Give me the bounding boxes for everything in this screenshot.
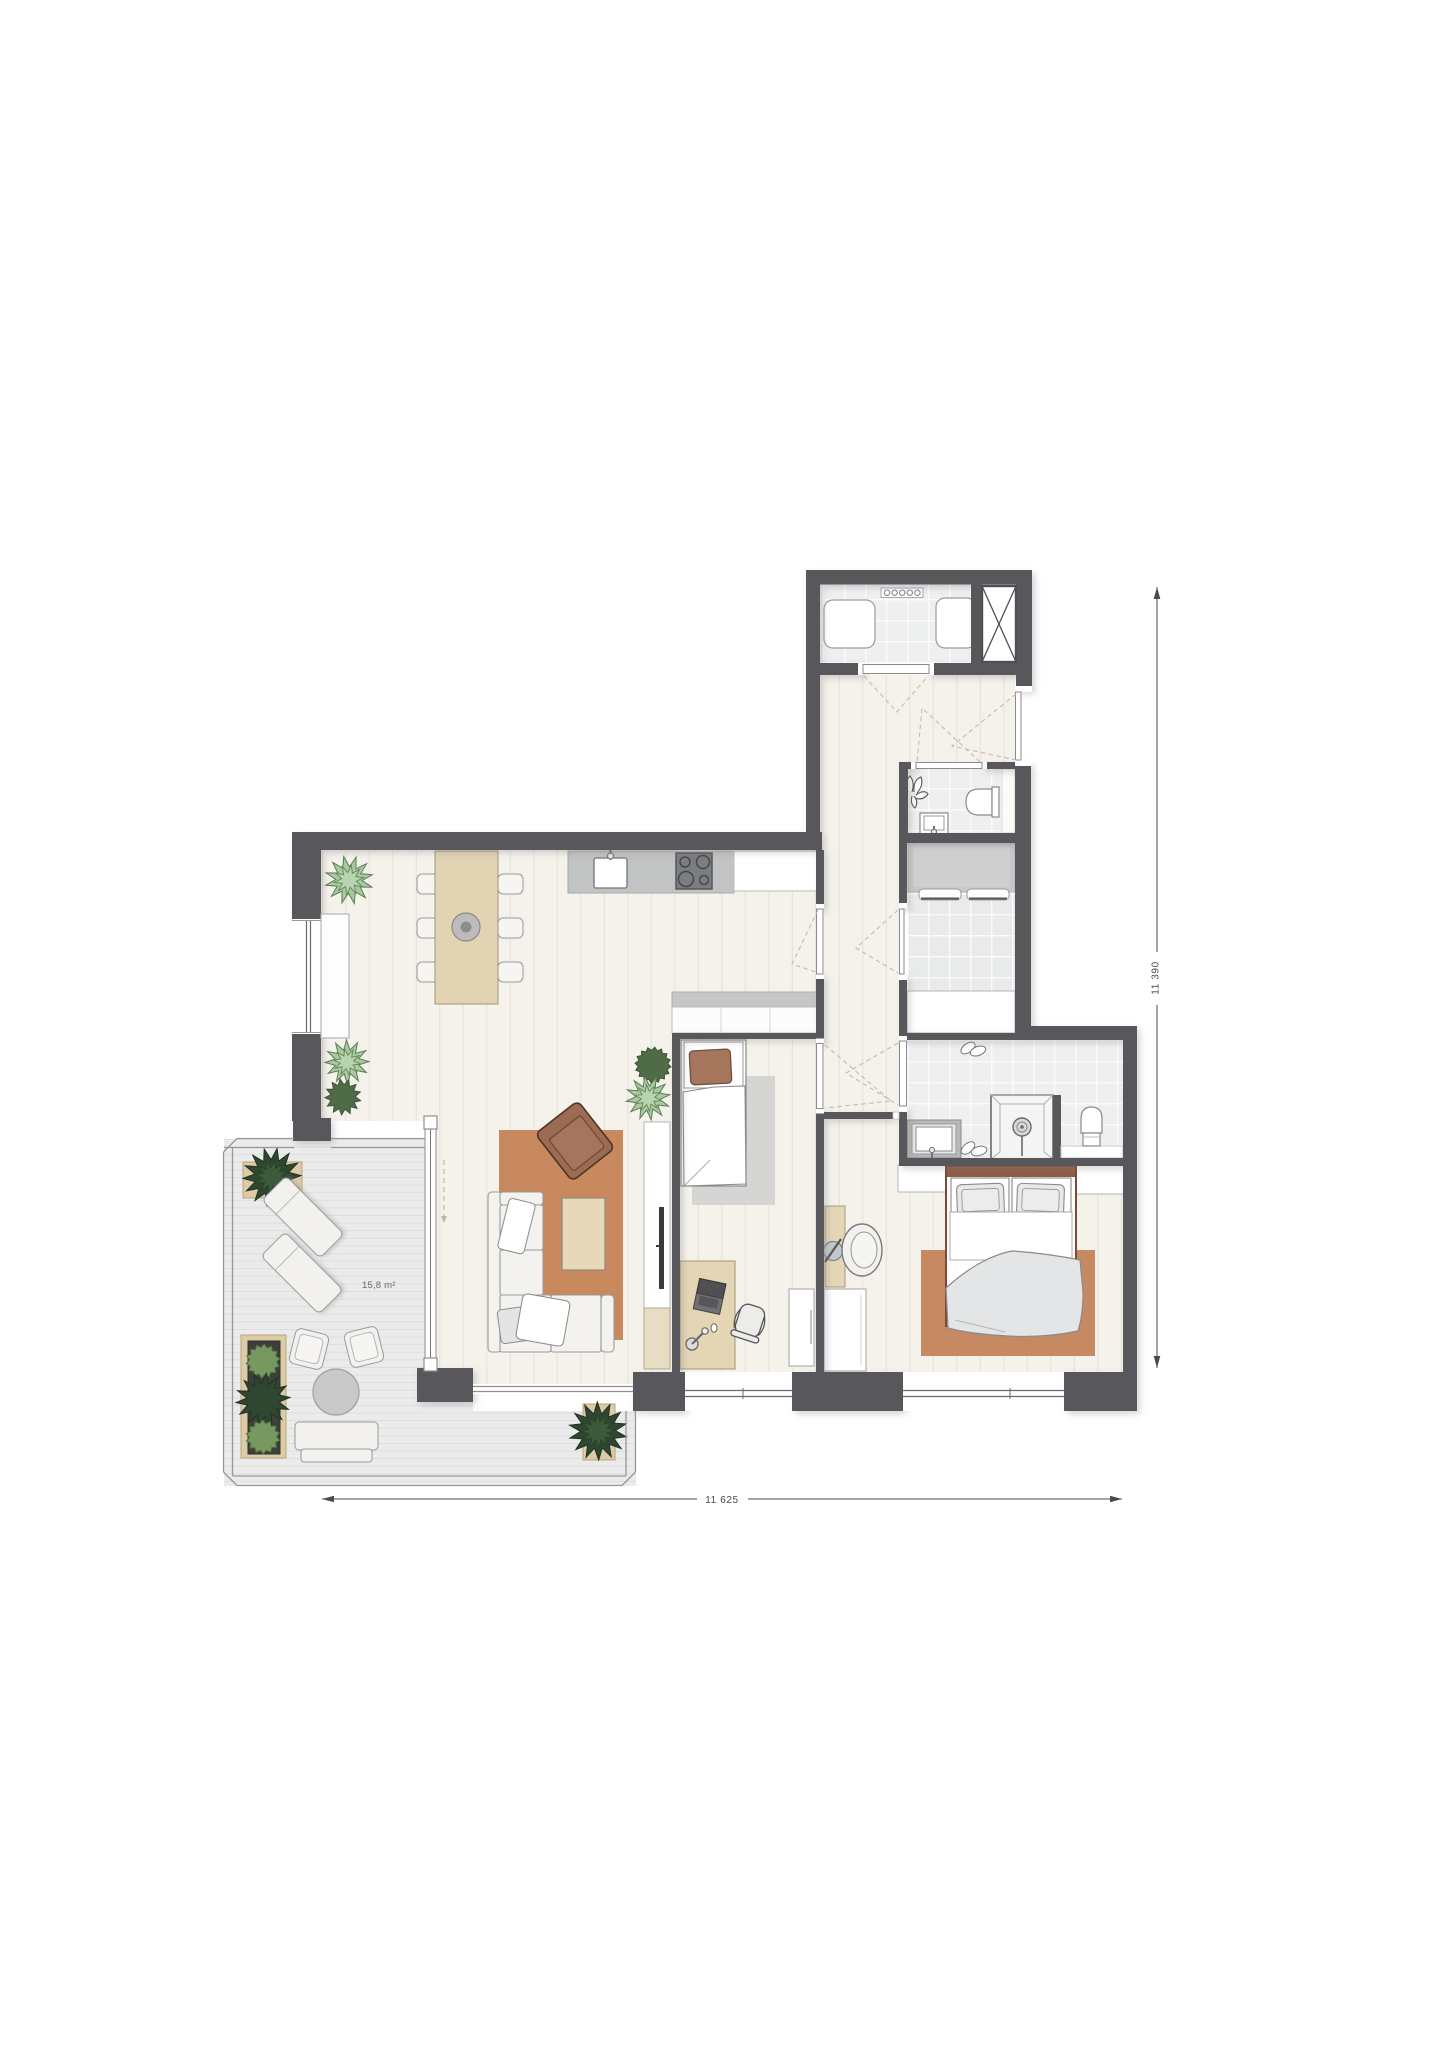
svg-text:11 625: 11 625 — [705, 1495, 738, 1506]
svg-text:15,8 m²: 15,8 m² — [362, 1280, 396, 1291]
svg-text:11 390: 11 390 — [1151, 961, 1162, 994]
